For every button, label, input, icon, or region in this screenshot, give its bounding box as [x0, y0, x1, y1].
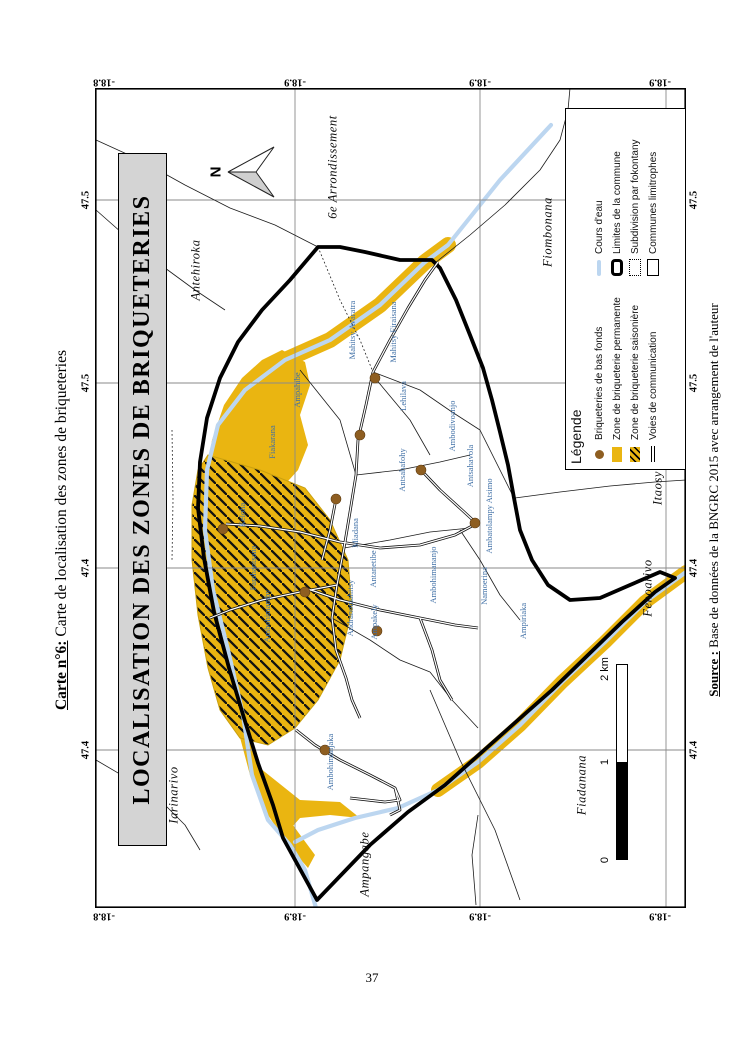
fokontany-label: Ambodivoanjo	[447, 401, 457, 452]
north-label: N	[208, 167, 225, 178]
source-note: Source : Base de données de la BNGRC 201…	[706, 303, 722, 696]
fokontany-label: Ampahibe	[292, 372, 302, 407]
legend-item-limitrophes: Communes limitrophes	[644, 139, 662, 276]
figure-caption: Carte n°6: Carte de localisation des zon…	[53, 350, 71, 710]
legend-item-cours-eau: Cours d'eau	[590, 139, 608, 276]
zone-saisoniere-swatch-icon	[630, 447, 640, 462]
fokontany-label: Antsahafohy	[397, 448, 407, 491]
commune-limitrophe-icon	[647, 259, 659, 276]
legend: Légende Briqueteries de bas fonds Zone d…	[565, 108, 686, 470]
source-text: Base de données de la BNGRC 2015 avec ar…	[706, 303, 721, 651]
commune-label: Fenoarivo	[641, 559, 656, 616]
grid-label-left: 47.5	[81, 374, 92, 392]
scale-bar: 0 1 2 km	[599, 652, 635, 872]
commune-label: Ampangabe	[358, 831, 373, 896]
legend-item-subdivision: Subdivision par fokontany	[626, 139, 644, 276]
commune-label: Fiadanana	[575, 755, 590, 815]
briqueterie-dot	[218, 524, 228, 534]
fokontany-label: Ambohimananjo	[428, 546, 438, 603]
briqueterie-dot	[470, 518, 480, 528]
fokontany-label: Andranomahitsy	[345, 580, 355, 637]
grid-label-bottom: -18.9	[469, 911, 491, 922]
legend-column-1: Briqueteries de bas fonds Zone de brique…	[590, 297, 662, 462]
briqueterie-dot	[370, 373, 380, 383]
scale-bar-filled	[617, 762, 627, 859]
fokontany-label: Fiakarana	[267, 425, 277, 459]
grid-label-right: 47.4	[689, 741, 700, 759]
scale-label-2km: 2 km	[599, 657, 611, 681]
briqueterie-dot	[416, 465, 426, 475]
commune-label: 6e Arrondissement	[326, 115, 341, 219]
briqueterie-dot-icon	[595, 450, 604, 459]
briqueterie-dot	[355, 430, 365, 440]
grid-label-bottom: -18.9	[649, 911, 671, 922]
fokontany-label: Namoerina	[479, 567, 489, 605]
figure-caption-number: Carte n°6:	[53, 641, 70, 710]
grid-label-top: -18.9	[649, 77, 671, 88]
voie-line-icon	[651, 446, 655, 462]
grid-label-right: 47.4	[689, 559, 700, 577]
grid-label-top: -18.8	[93, 77, 115, 88]
fokontany-label: Ambohimamby	[262, 589, 272, 642]
commune-label: Iarinarivo	[167, 766, 182, 823]
grid-label-right: 47.5	[689, 374, 700, 392]
fokontany-label: Keloha	[237, 503, 247, 528]
legend-item-zone-permanente: Zone de briqueterie permanente	[608, 297, 626, 462]
grid-label-left: 47.4	[81, 559, 92, 577]
grid-label-bottom: -18.9	[284, 911, 306, 922]
figure-caption-text: Carte de localisation des zones de briqu…	[53, 350, 70, 641]
scale-label-0: 0	[599, 857, 611, 863]
scale-bar-track	[616, 664, 628, 860]
commune-label: Antehiroka	[189, 239, 204, 300]
fokontany-label: Miadana	[350, 518, 360, 548]
briqueterie-dot	[300, 587, 310, 597]
document-page: Carte n°6: Carte de localisation des zon…	[0, 0, 745, 1053]
grid-label-top: -18.9	[469, 77, 491, 88]
legend-column-2: Cours d'eau Limites de la commune Subdiv…	[590, 139, 662, 276]
grid-label-left: 47.4	[81, 741, 92, 759]
map-title: LOCALISATION DES ZONES DE BRIQUETERIES	[129, 194, 156, 804]
commune-label: Itaosy	[651, 471, 666, 505]
grid-label-top: -18.9	[284, 77, 306, 88]
briqueterie-dot	[331, 494, 341, 504]
fokontany-label: Ambohimanjaka	[325, 734, 335, 791]
fokontany-label: Ambatolampy Atsimo	[484, 478, 494, 553]
page-number: 37	[366, 970, 379, 986]
fokontany-label: Mahitsy Avaratra	[347, 301, 357, 360]
fokontany-label: Antanetibe	[368, 550, 378, 587]
scale-label-1: 1	[599, 759, 611, 765]
legend-title: Légende	[568, 409, 584, 464]
grid-label-bottom: -18.8	[93, 911, 115, 922]
legend-item-limites: Limites de la commune	[608, 139, 626, 276]
fokontany-label: Lehilava	[398, 381, 408, 411]
fokontany-label: Mahitsy Firaisana	[388, 301, 398, 362]
grid-label-right: 47.5	[689, 191, 700, 209]
commune-label: Fiombonana	[541, 197, 556, 267]
fokontany-label: Antsahavola	[465, 445, 475, 488]
fokontany-label: Ampiriaka	[518, 603, 528, 639]
legend-item-briqueteries: Briqueteries de bas fonds	[590, 297, 608, 462]
zone-permanente-swatch-icon	[612, 447, 622, 462]
grid-label-left: 47.5	[81, 191, 92, 209]
map-title-banner: LOCALISATION DES ZONES DE BRIQUETERIES	[118, 153, 167, 846]
fokontany-label: Ampakely	[369, 604, 379, 639]
river-line-icon	[597, 260, 600, 276]
fokontany-subdivision-icon	[629, 259, 641, 276]
legend-item-zone-saisoniere: Zone de briqueterie saisonière	[626, 297, 644, 462]
source-label: Source :	[706, 651, 721, 697]
legend-item-voies: Voies de communication	[644, 297, 662, 462]
fokontany-label: Farahantsana	[248, 546, 258, 591]
commune-limit-icon	[611, 259, 623, 276]
